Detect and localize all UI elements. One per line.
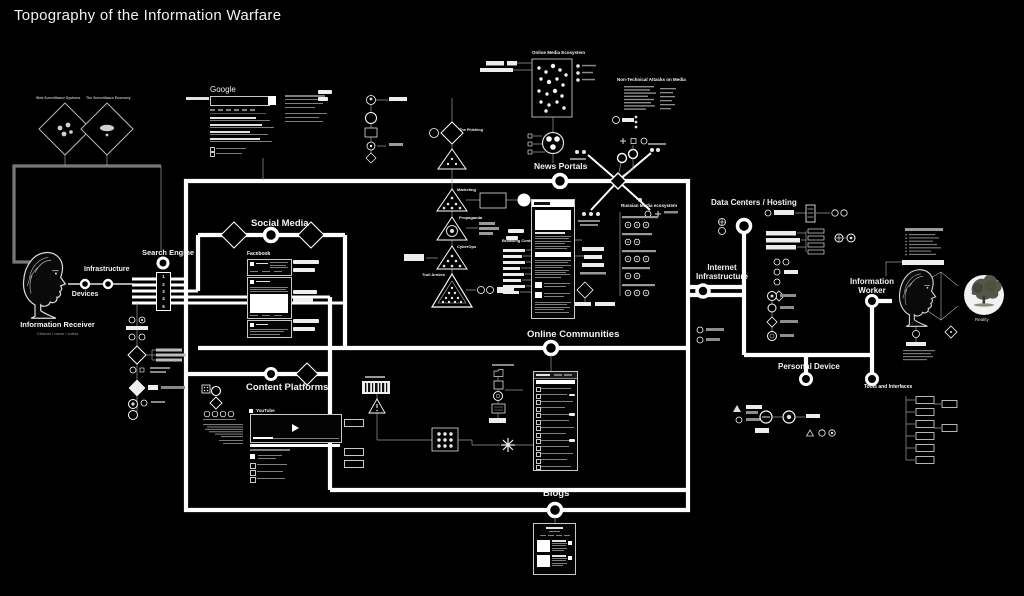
social-media-label: Social Media (251, 219, 309, 230)
barcode-node (362, 376, 432, 440)
propaganda-label: Propaganda (459, 216, 482, 220)
search-result-rank: 1 (162, 274, 165, 279)
left-detail-chain (126, 303, 186, 420)
content-flow-icons (202, 385, 243, 444)
personal-device-label: Personal Device (778, 363, 840, 372)
news-portals-label: News Portals (534, 162, 587, 172)
internet-infra-details (697, 327, 724, 343)
search-result-rank: 5 (162, 304, 165, 309)
blog-post-image (537, 540, 550, 552)
diagram-lines (0, 0, 1024, 596)
search-result-rank: 3 (162, 289, 165, 294)
search-result-rank: 4 (162, 296, 165, 301)
diagram-canvas: Topography of the Information Warfare We… (0, 0, 1024, 596)
surveillance-right-label: The Surveillance Economy (86, 97, 131, 101)
russian-media-ecosystem-label: Russian Media ecosystem (621, 203, 677, 208)
mid-label-pills (573, 240, 615, 306)
blog-mockup[interactable] (533, 523, 576, 575)
facebook-post[interactable] (247, 277, 292, 319)
non-technical-attacks-label: Non-Technical Attacks on Media (617, 77, 686, 82)
asterisk-icon (501, 438, 515, 452)
tools-interfaces-label: Tools and Interfaces (864, 385, 912, 391)
news-hero-image (535, 210, 571, 230)
page-title: Topography of the Information Warfare (14, 8, 281, 25)
dots-grid-box (432, 428, 534, 452)
google-logo: Google (210, 86, 236, 95)
infrastructure-label: Infrastructure (84, 266, 130, 274)
facebook-logo: Facebook (247, 252, 270, 258)
personal-device-details (733, 405, 835, 436)
search-results-stack[interactable]: 1 2 3 4 5 (156, 272, 171, 311)
internet-infrastructure-label: Internet Infrastructure (692, 264, 752, 282)
youtube-player[interactable] (250, 414, 342, 443)
news-junction (570, 143, 678, 226)
google-search-button[interactable] (268, 96, 276, 105)
phishing-label: The Phishing (458, 128, 484, 132)
blogs-label: Blogs (543, 489, 569, 500)
surveillance-left-label: Web Surveillance Systems (36, 97, 80, 101)
hosting-icon-column (767, 292, 798, 341)
search-engine-label: Search Engine (142, 249, 194, 257)
online-media-ecosystem-label: Online Media Ecosystem (532, 50, 585, 55)
troll-armies-label: Troll Armies (422, 273, 445, 277)
google-search-input[interactable] (210, 96, 270, 106)
marketing-label: Marketing (457, 188, 476, 192)
receiver-trace (14, 155, 161, 262)
russian-media-list (620, 212, 658, 296)
blog-post-image (537, 555, 550, 567)
information-receiver-label: Information Receiver (5, 321, 110, 329)
facebook-post[interactable] (247, 259, 292, 276)
data-centers-label: Data Centers / Hosting (711, 199, 797, 208)
connector-nodes (81, 175, 878, 517)
search-result-rank: 2 (162, 282, 165, 287)
news-portal-mockup[interactable] (531, 199, 575, 319)
facebook-post[interactable] (247, 320, 292, 338)
reality-label: Reality (975, 317, 989, 322)
reality-tree (964, 275, 1004, 315)
online-communities-label: Online Communities (527, 330, 619, 341)
information-worker-label: Information Worker (840, 278, 904, 296)
devices-label: Devices (60, 291, 110, 299)
youtube-logo-icon (249, 409, 253, 413)
cyberops-label: CyberOps (457, 245, 476, 249)
surveillance-diamonds (39, 103, 133, 155)
information-receiver-sub: Citizens / users / voters (5, 332, 110, 336)
facebook-post-image (250, 294, 288, 313)
youtube-logo-label: YouTube (256, 408, 275, 413)
forum-mockup[interactable] (533, 371, 578, 471)
content-platforms-label: Content Platforms (246, 383, 328, 394)
tools-tree (906, 396, 957, 464)
information-worker-head (899, 270, 935, 327)
online-media-ecosystem-box (480, 59, 596, 163)
information-receiver-head (23, 253, 65, 319)
play-icon[interactable] (292, 424, 299, 432)
